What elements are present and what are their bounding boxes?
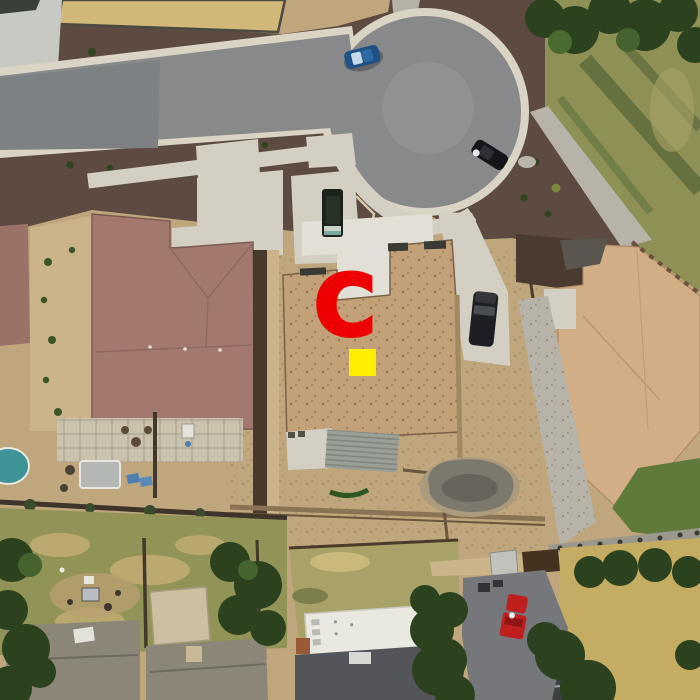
fence-yard-divider-1: [144, 538, 146, 648]
spa-cover: [182, 424, 194, 438]
lot-divider-path: [267, 250, 279, 548]
white-car-cover: [73, 627, 95, 644]
parked-van: [322, 189, 343, 237]
marker-letter-c[interactable]: C: [314, 257, 376, 355]
ribbed-material-stack: [325, 430, 399, 473]
chimney: [186, 646, 202, 662]
rock: [518, 156, 536, 168]
shed-tan: [150, 587, 210, 645]
roof-vent: [349, 652, 371, 664]
lot-divider-shadow: [253, 250, 267, 545]
red-dirt-patch: [296, 638, 310, 654]
marker-yellow-square[interactable]: [349, 349, 376, 376]
far-left-house-roof: [0, 224, 30, 346]
metal-shed: [490, 550, 518, 577]
brown-shed: [522, 549, 560, 574]
asphalt-highlight: [382, 62, 474, 154]
aerial-photo: C: [0, 0, 700, 700]
driveway-apron-right: [306, 133, 356, 168]
side-yard-dirt-strip: [30, 216, 92, 431]
lap-pool: [80, 461, 120, 488]
